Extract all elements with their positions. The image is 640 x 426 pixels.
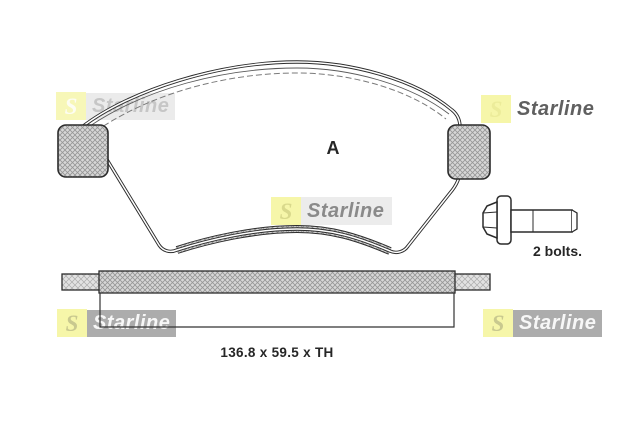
- brake-pad-technical-drawing: [0, 0, 640, 426]
- pad-outline: [82, 62, 460, 252]
- product-illustration-canvas: S Starline S Starline S Starline S Starl…: [0, 0, 640, 426]
- brake-pad-front-view: [58, 62, 490, 252]
- view-marker-label: A: [318, 138, 348, 159]
- brake-pad-side-view: [62, 271, 490, 327]
- pad-left-tab: [58, 125, 108, 177]
- flange-bolt-drawing: [483, 196, 577, 244]
- bolt-count-caption: 2 bolts.: [500, 243, 615, 259]
- pad-inner-edge-line: [90, 68, 449, 126]
- pad-right-tab: [448, 125, 490, 179]
- pad-outline-inner-gap: [82, 62, 460, 252]
- bolt-hex-head: [483, 202, 497, 238]
- dimension-bracket: [100, 293, 454, 327]
- bolt-shaft: [511, 210, 572, 232]
- pad-dashed-line: [96, 73, 446, 131]
- bolt-flange: [497, 196, 511, 244]
- bolt-tip: [572, 210, 577, 232]
- pad-dimensions-caption: 136.8 x 59.5 x TH: [100, 345, 454, 360]
- side-view-friction-strip: [99, 271, 455, 293]
